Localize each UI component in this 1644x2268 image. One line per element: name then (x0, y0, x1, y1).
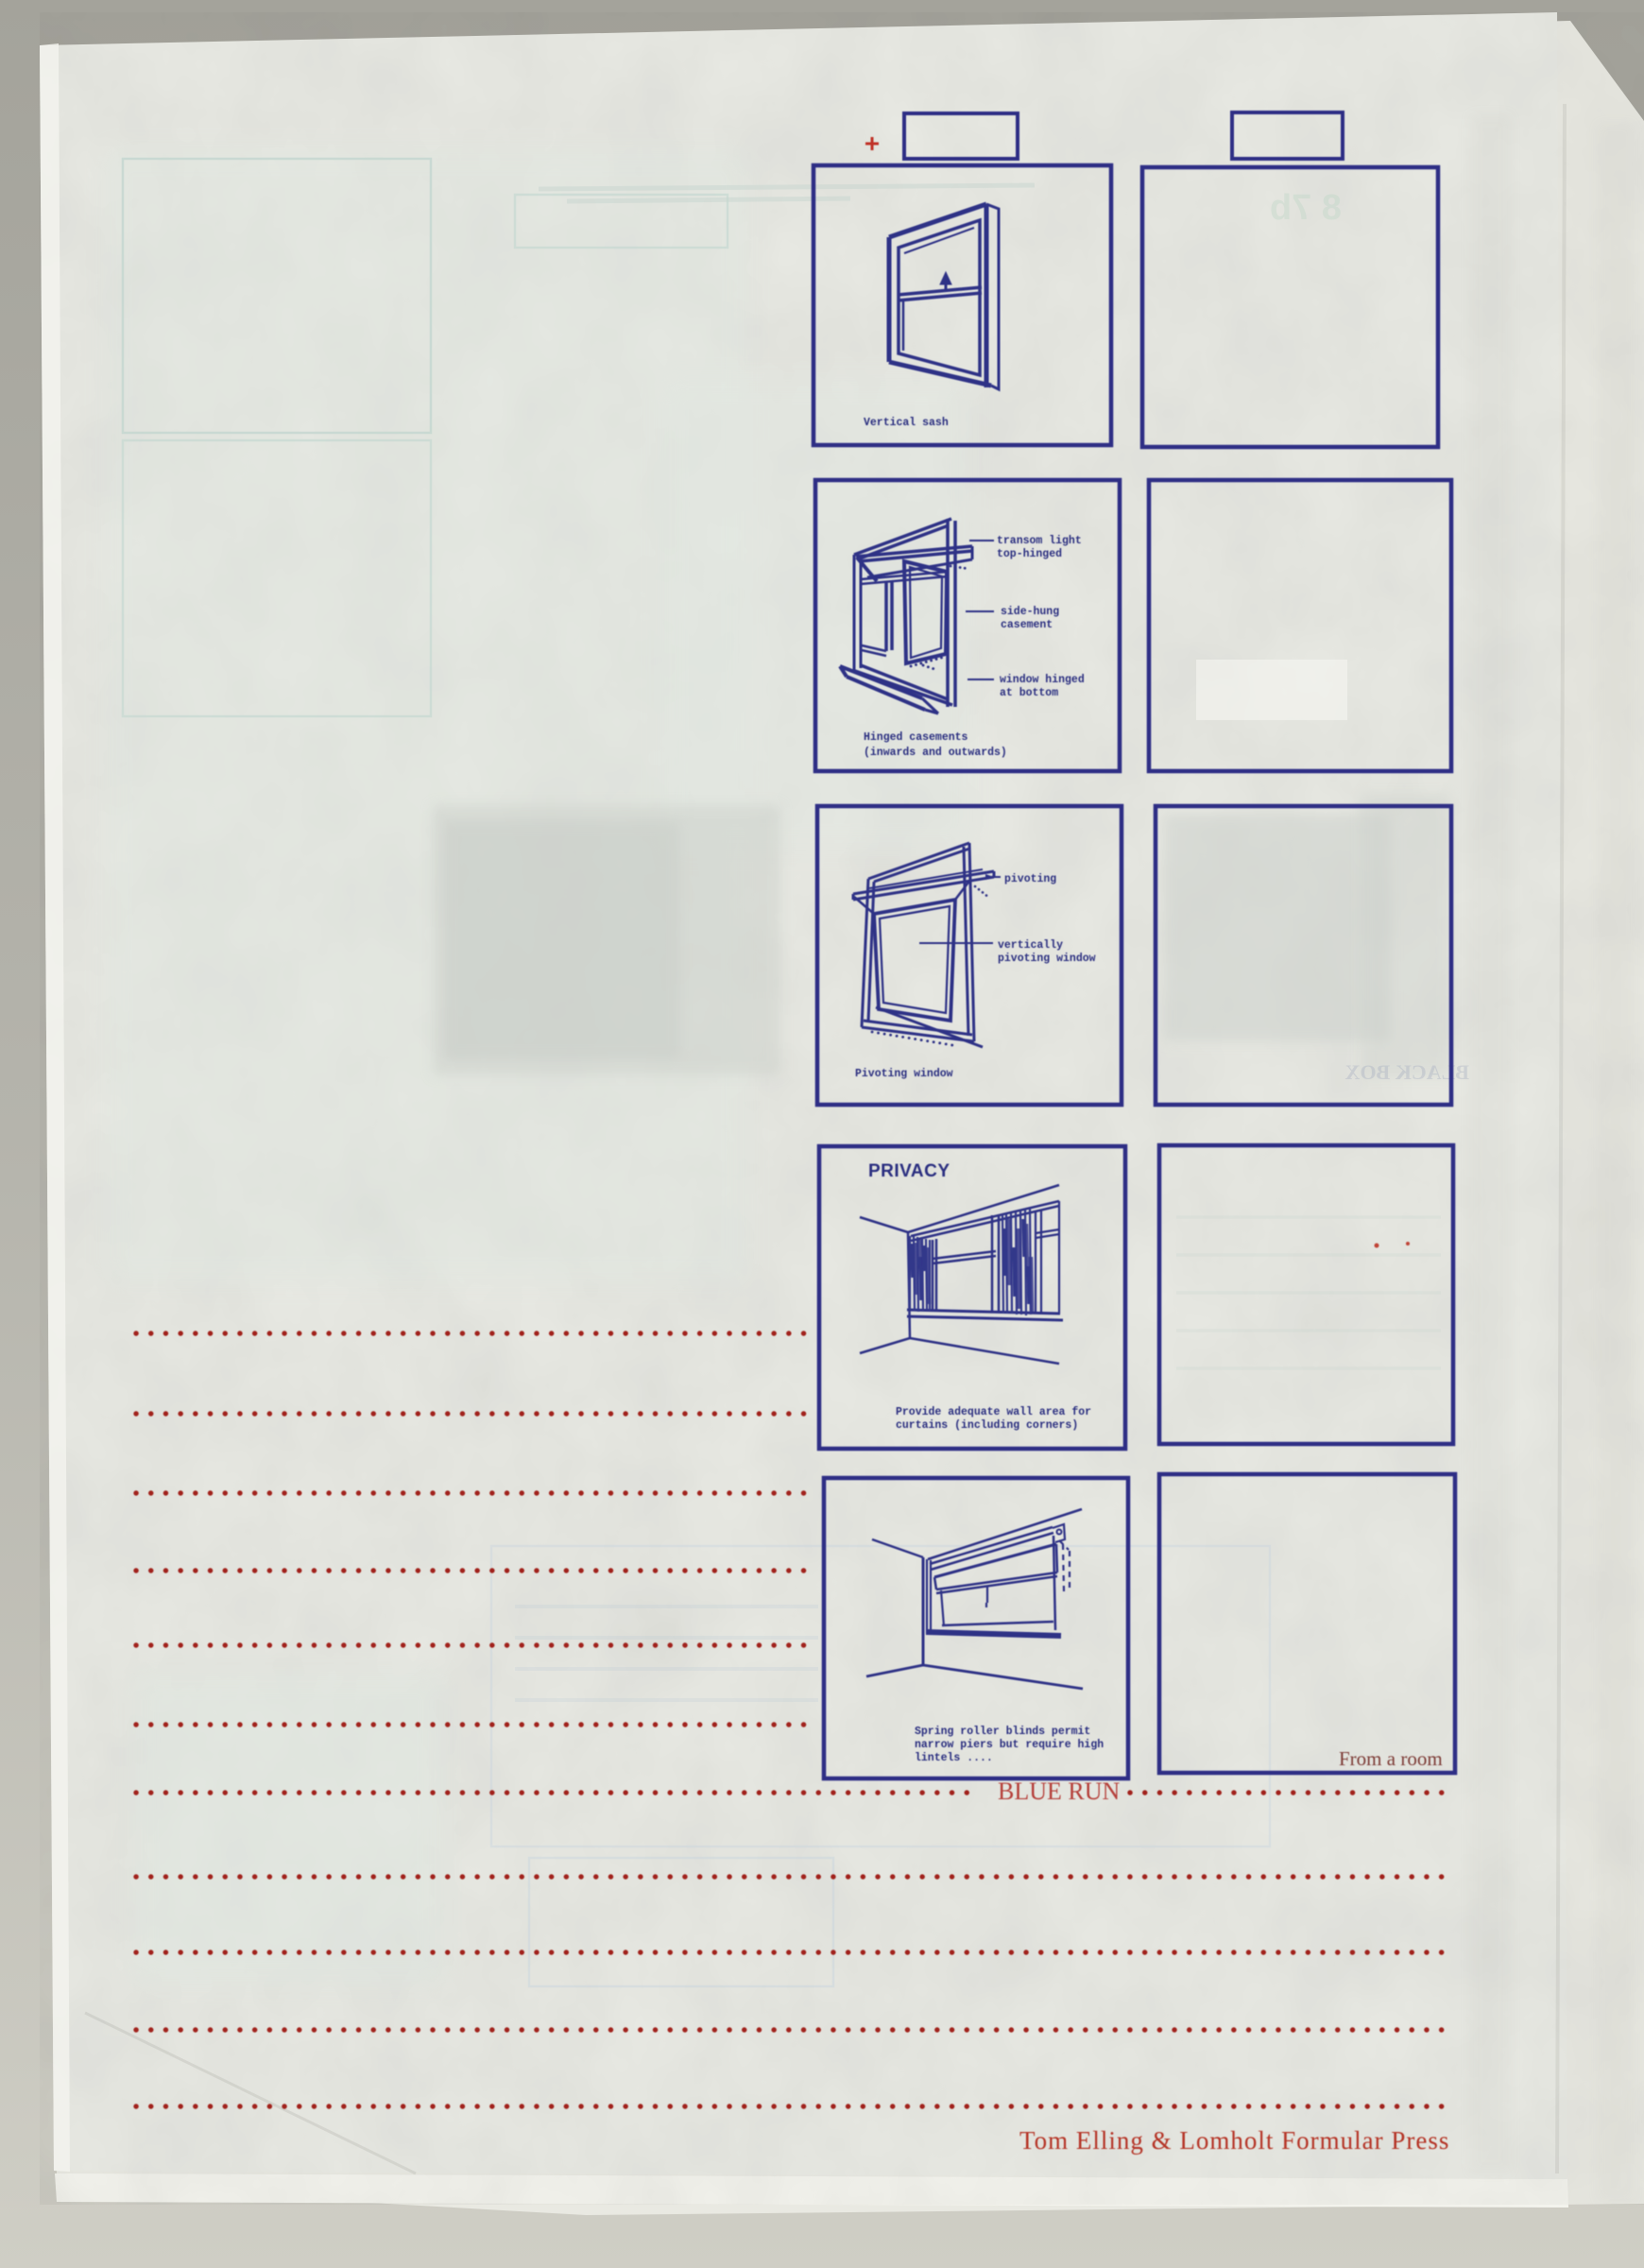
svg-text:window hinged: window hinged (1000, 674, 1085, 686)
svg-text:pivoting: pivoting (1004, 873, 1056, 885)
svg-text:casement: casement (1001, 619, 1053, 631)
svg-text:narrow piers but require high: narrow piers but require high (915, 1739, 1104, 1751)
svg-text:pivoting window: pivoting window (998, 953, 1096, 965)
svg-text:Tom Elling & Lomholt Formular: Tom Elling & Lomholt Formular Press (1019, 2126, 1449, 2155)
svg-text:at bottom: at bottom (1000, 687, 1058, 699)
svg-text:top-hinged: top-hinged (997, 548, 1062, 560)
svg-text:Vertical sash: Vertical sash (864, 417, 949, 429)
svg-text:vertically: vertically (998, 939, 1063, 952)
svg-text:transom light: transom light (997, 535, 1082, 547)
svg-text:curtains (including corners): curtains (including corners) (896, 1419, 1078, 1432)
svg-text:PRIVACY: PRIVACY (868, 1161, 950, 1181)
svg-text:Hinged casements: Hinged casements (864, 731, 968, 744)
svg-text:Pivoting window: Pivoting window (855, 1068, 953, 1080)
svg-text:8 7b: 8 7b (1270, 188, 1342, 228)
svg-text:BLUE RUN: BLUE RUN (998, 1778, 1121, 1805)
svg-text:Spring roller blinds permit: Spring roller blinds permit (915, 1726, 1090, 1738)
svg-text:lintels ....: lintels .... (915, 1752, 993, 1764)
svg-text:From a room: From a room (1339, 1747, 1443, 1770)
svg-text:(inwards and outwards): (inwards and outwards) (864, 747, 1007, 759)
svg-text:Provide adequate wall area for: Provide adequate wall area for (896, 1406, 1091, 1418)
svg-text:side-hung: side-hung (1001, 606, 1059, 618)
